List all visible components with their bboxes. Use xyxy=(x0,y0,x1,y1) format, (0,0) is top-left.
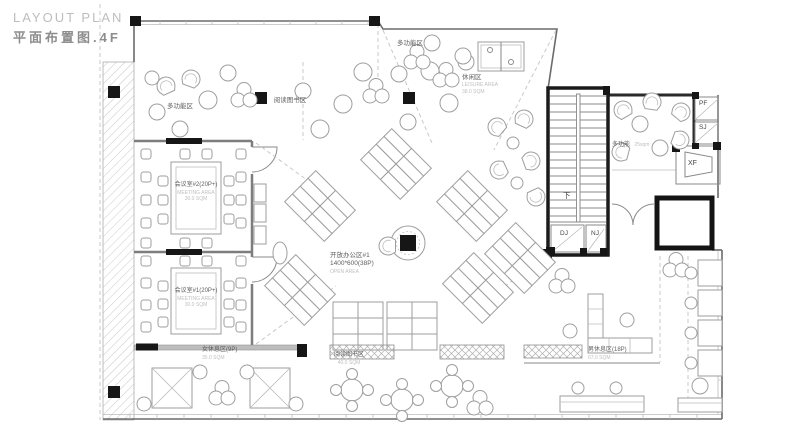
meeting1-name: 会议室#1(20P+) xyxy=(146,288,246,296)
open-office-sub: OPEN AREA xyxy=(330,269,374,276)
shaft-label-pf: PF xyxy=(699,100,707,108)
men-rest-area: 67.0 SQM xyxy=(588,355,627,362)
leisure-sub: LEISURE AREA xyxy=(462,82,498,89)
room-label-multi-top-left: 多功能区 xyxy=(150,103,210,111)
zone-leisure xyxy=(478,42,548,209)
floor-plan-drawing xyxy=(0,0,800,446)
room-label-women-rest: 女休息区(9P) 35.0 SQM xyxy=(202,347,237,361)
open-office-name: 开放办公区#1 xyxy=(330,252,374,260)
meeting2-area: 30.0 SQM xyxy=(146,196,246,203)
meeting2-name: 会议室#2(20P+) xyxy=(146,182,246,190)
lounge-right-name: 多功能 xyxy=(612,142,630,148)
zone-women-rest xyxy=(137,365,303,411)
reading-bottom-name: 阅读图书区 xyxy=(306,352,392,360)
stair-down-label: 下 xyxy=(563,191,571,201)
women-rest-area: 35.0 SQM xyxy=(202,355,237,362)
shaft-label-nj: NJ xyxy=(591,230,599,238)
sheet-title-en: LAYOUT PLAN xyxy=(13,10,123,25)
room-label-meeting-2: 会议室#2(20P+) MEETING AREA 30.0 SQM xyxy=(146,182,246,203)
reading-bottom-area: 40.0 SQM xyxy=(306,360,392,367)
room-label-men-rest: 男休息区(18P) 67.0 SQM xyxy=(588,347,627,361)
leisure-area: 38.0 SQM xyxy=(462,89,498,96)
room-label-meeting-1: 会议室#1(20P+) MEETING AREA 30.0 SQM xyxy=(146,288,246,309)
room-label-lounge-right: 多功能 25sqm xyxy=(612,132,649,153)
room-label-reading-top: 阅读图书区 xyxy=(258,97,322,105)
shaft-label-xf: XF xyxy=(688,159,697,168)
meeting1-area: 30.0 SQM xyxy=(146,302,246,309)
shaft-label-sj: SJ xyxy=(699,124,707,132)
room-label-open-office: 开放办公区#1 1400*600(38P) OPEN AREA xyxy=(330,252,374,275)
women-rest-name: 女休息区(9P) xyxy=(202,347,237,355)
zone-open-office xyxy=(265,129,556,350)
zone-men-rest xyxy=(549,269,652,354)
men-rest-name: 男休息区(18P) xyxy=(588,347,627,355)
open-office-spec: 1400*600(38P) xyxy=(330,260,374,268)
leisure-name: 休闲区 xyxy=(462,74,498,82)
room-label-reading-bottom: 阅读图书区 40.0 SQM xyxy=(306,352,392,366)
room-label-multi-top: 多功能区 xyxy=(382,40,438,48)
shaft-label-dj: DJ xyxy=(560,230,568,238)
zone-right-desks xyxy=(663,253,722,413)
zone-multi-top-left xyxy=(145,65,257,137)
lounge-right-area: 25sqm xyxy=(634,142,649,148)
sheet-title-zh: 平面布置图.4F xyxy=(13,27,121,46)
corridor-seating xyxy=(254,184,287,264)
room-label-leisure: 休闲区 LEISURE AREA 38.0 SQM xyxy=(462,74,498,95)
